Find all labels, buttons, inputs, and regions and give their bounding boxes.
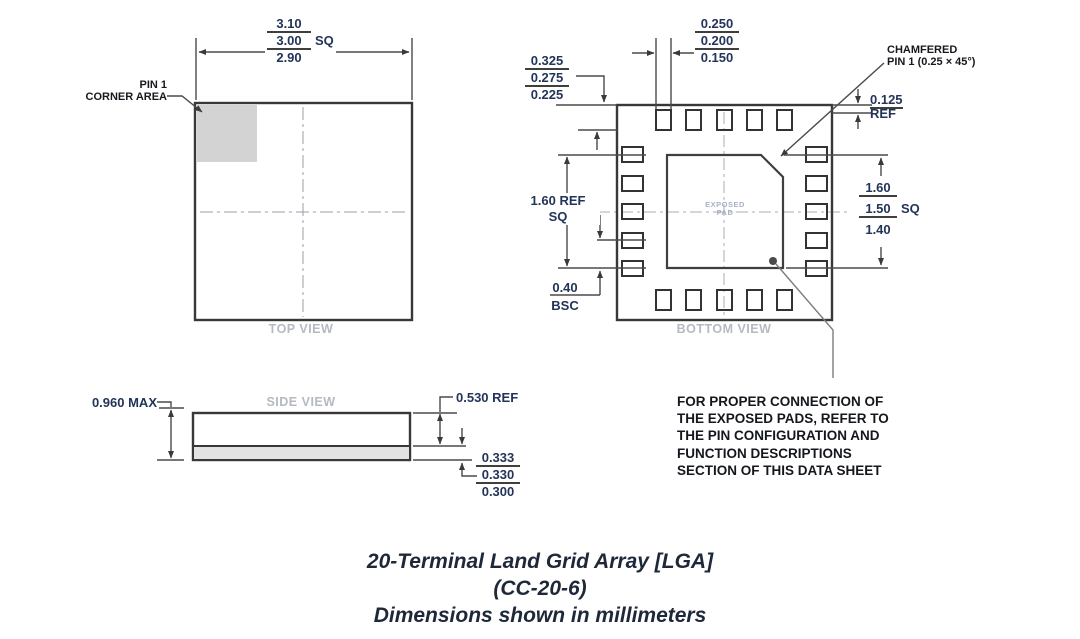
dimension-terminal-thickness: 0.333 0.330 0.300 xyxy=(476,450,520,501)
dimension-pad-span: 1.60 REF SQ xyxy=(516,193,600,225)
top-view-label: TOP VIEW xyxy=(246,322,356,336)
top-view-drawing xyxy=(167,38,412,320)
dimension-body-thickness: 0.530 REF xyxy=(456,390,518,405)
figure-caption: 20-Terminal Land Grid Array [LGA] (CC-20… xyxy=(140,548,940,629)
dim-min: 2.90 xyxy=(267,50,311,65)
pin1-corner-area xyxy=(197,105,257,162)
dimension-edge-to-pad: 0.125 REF xyxy=(870,93,903,121)
dimension-pad-pitch: 0.40 BSC xyxy=(541,280,589,313)
dimension-top-view-width: 3.10 3.00SQ 2.90 xyxy=(267,16,334,67)
caption-units: Dimensions shown in millimeters xyxy=(140,602,940,629)
dimension-pad-width: 0.250 0.200 0.150 xyxy=(695,16,739,67)
terminal-strip xyxy=(193,446,410,460)
bottom-view-label: BOTTOM VIEW xyxy=(659,322,789,336)
exposed-pad-note: FOR PROPER CONNECTION OF THE EXPOSED PAD… xyxy=(677,393,889,479)
chamfered-pin1-label: CHAMFERED PIN 1 (0.25 × 45°) xyxy=(887,44,975,68)
dimension-pad-length: 0.325 0.275 0.225 xyxy=(525,53,569,104)
pin1-corner-area-label: PIN 1 CORNER AREA xyxy=(51,79,167,103)
exposed-pad-label: EXPOSED PAD xyxy=(695,201,755,217)
package-dimension-drawing: 3.10 3.00SQ 2.90 PIN 1 CORNER AREA TOP V… xyxy=(0,0,1080,639)
dimension-height: 0.960 MAX xyxy=(55,395,157,410)
caption-package-code: (CC-20-6) xyxy=(140,575,940,602)
dimension-exposed-pad: 1.60 1.50SQ 1.40 xyxy=(859,180,920,243)
dim-suffix: SQ xyxy=(315,33,334,48)
dim-nom: 3.00 xyxy=(267,33,311,50)
dim-max: 3.10 xyxy=(267,16,311,33)
caption-title: 20-Terminal Land Grid Array [LGA] xyxy=(140,548,940,575)
exposed-pad-reference-dot xyxy=(769,257,777,265)
side-view-label: SIDE VIEW xyxy=(246,395,356,409)
